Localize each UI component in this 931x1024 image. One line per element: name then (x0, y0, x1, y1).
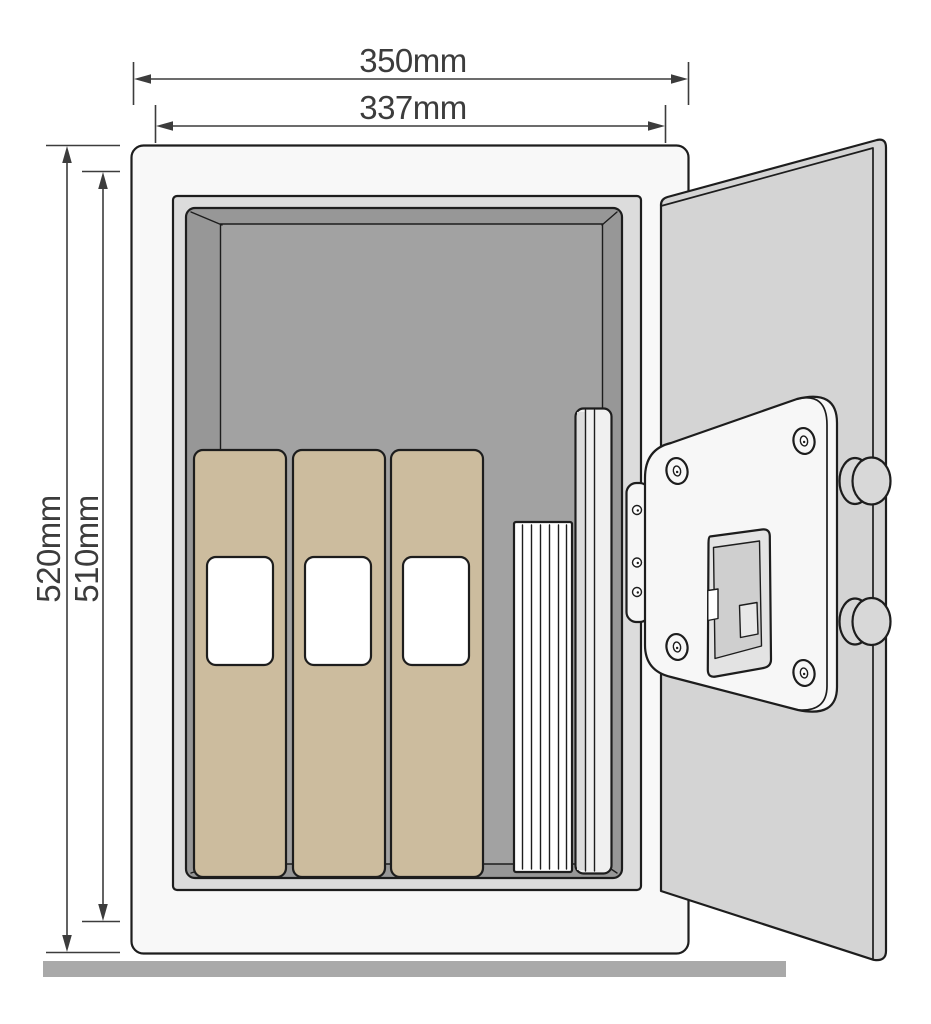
door-knob-top (840, 458, 891, 505)
dimension-inner-width: 337mm (156, 89, 666, 143)
tall-folder (576, 409, 612, 874)
binder-label (305, 557, 371, 665)
binder-label-group (207, 557, 469, 665)
document-stack (514, 522, 572, 872)
arrow-up-icon (98, 172, 108, 189)
arrow-left-icon (156, 121, 173, 131)
keypad-battery-tab (708, 589, 718, 621)
dim-label-outer-height: 520mm (30, 495, 67, 603)
keypad-display (740, 603, 759, 638)
keypad (708, 529, 771, 676)
arrow-left-icon (134, 74, 151, 84)
arrow-right-icon (648, 121, 665, 131)
binder-label (403, 557, 469, 665)
door-knob-bottom (840, 598, 891, 645)
dimension-inner-height: 510mm (68, 172, 120, 922)
keypad-face (714, 541, 762, 659)
safe-dimension-diagram: 350mm 337mm 520mm 510mm (0, 0, 931, 1024)
arrow-right-icon (671, 74, 688, 84)
dim-label-inner-height: 510mm (68, 495, 105, 603)
arrow-up-icon (62, 146, 72, 163)
arrow-down-icon (62, 935, 72, 952)
floor-line (43, 961, 786, 977)
diagram-canvas: 350mm 337mm 520mm 510mm (0, 0, 931, 1024)
arrow-down-icon (98, 904, 108, 921)
dim-label-inner-width: 337mm (359, 89, 467, 126)
dim-label-outer-width: 350mm (359, 42, 467, 79)
binder-label (207, 557, 273, 665)
